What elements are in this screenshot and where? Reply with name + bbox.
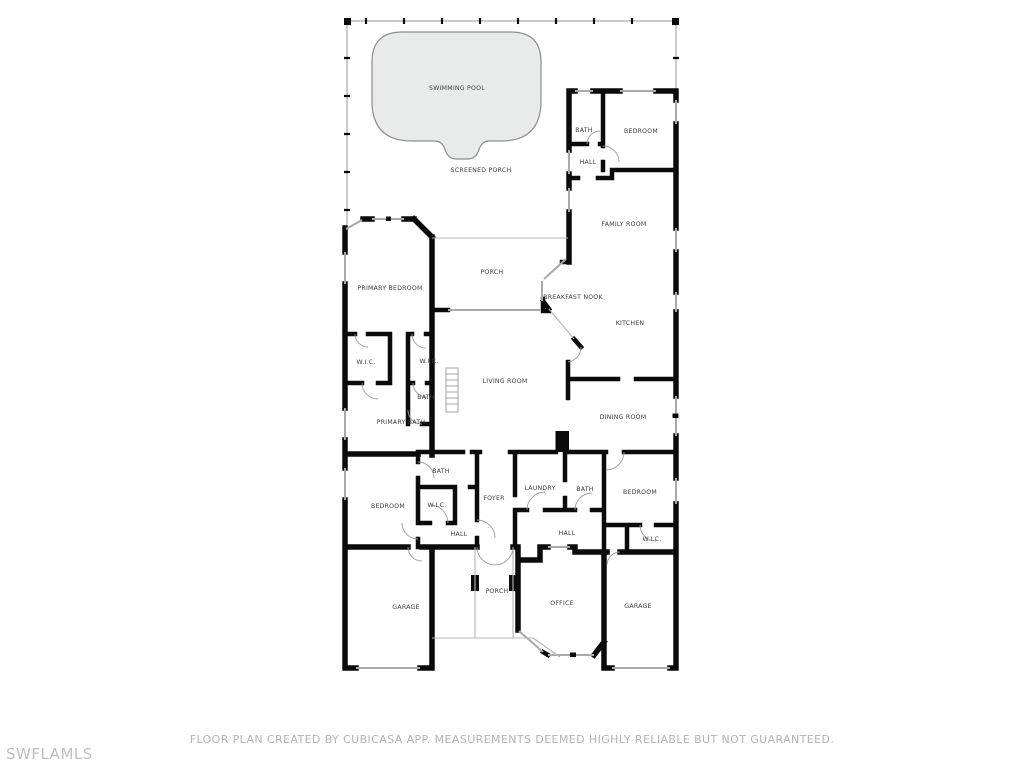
room-label-porch-upper: PORCH (481, 269, 504, 276)
room-label-office: OFFICE (550, 600, 574, 607)
room-label-primary-bedroom: PRIMARY BEDROOM (357, 285, 422, 292)
room-label-hall-2: HALL (451, 531, 468, 538)
screen-post-left (344, 18, 351, 25)
room-label-breakfast-nook: BREAKFAST NOOK (543, 294, 603, 301)
room-label-wic-2: W.I.C. (420, 358, 439, 365)
fireplace-chase (556, 431, 570, 452)
room-label-hall-1: HALL (580, 159, 597, 166)
room-label-swimming-pool: SWIMMING POOL (429, 85, 485, 92)
room-labels: SWIMMING POOL SCREENED PORCH BATH BEDROO… (357, 85, 662, 611)
room-label-wic-1: W.I.C. (357, 359, 376, 366)
room-label-garage-right: GARAGE (624, 603, 651, 610)
room-label-bedroom-2: BEDROOM (371, 503, 405, 510)
room-label-hall-3: HALL (559, 530, 576, 537)
floor-plan-canvas: SWIMMING POOL SCREENED PORCH BATH BEDROO… (0, 0, 1024, 768)
room-label-foyer: FOYER (483, 495, 505, 502)
room-label-bedroom-3: BEDROOM (623, 489, 657, 496)
room-label-garage-left: GARAGE (392, 604, 419, 611)
room-label-porch-lower: PORCH (486, 588, 509, 595)
screen-post-right (672, 18, 679, 25)
shelving-hatch (446, 368, 458, 412)
room-label-bath-1: BATH (575, 127, 593, 134)
room-label-primary-bath: PRIMARY BATH (377, 419, 426, 426)
floor-plan-page: SWIMMING POOL SCREENED PORCH BATH BEDROO… (0, 0, 1024, 768)
door-arcs (355, 131, 656, 565)
room-label-family-room: FAMILY ROOM (602, 221, 647, 228)
room-label-bath-3: BATH (432, 468, 450, 475)
room-label-wic-3: W.I.C. (428, 502, 447, 509)
room-label-bath-4: BATH (576, 486, 594, 493)
mls-watermark: SWFLAMLS (6, 745, 93, 763)
room-label-wic-4: W.I.C. (643, 536, 662, 543)
room-label-dining-room: DINING ROOM (600, 414, 647, 421)
room-label-screened-porch: SCREENED PORCH (451, 167, 512, 174)
interior-walls (345, 91, 676, 655)
room-label-kitchen: KITCHEN (616, 320, 645, 327)
disclaimer-text: FLOOR PLAN CREATED BY CUBICASA APP. MEAS… (0, 733, 1024, 746)
room-label-bedroom-1: BEDROOM (624, 128, 658, 135)
swimming-pool-shape (372, 32, 541, 159)
room-label-laundry: LAUNDRY (524, 485, 555, 492)
room-label-bath-2: BATH (417, 394, 435, 401)
room-label-living-room: LIVING ROOM (483, 378, 528, 385)
